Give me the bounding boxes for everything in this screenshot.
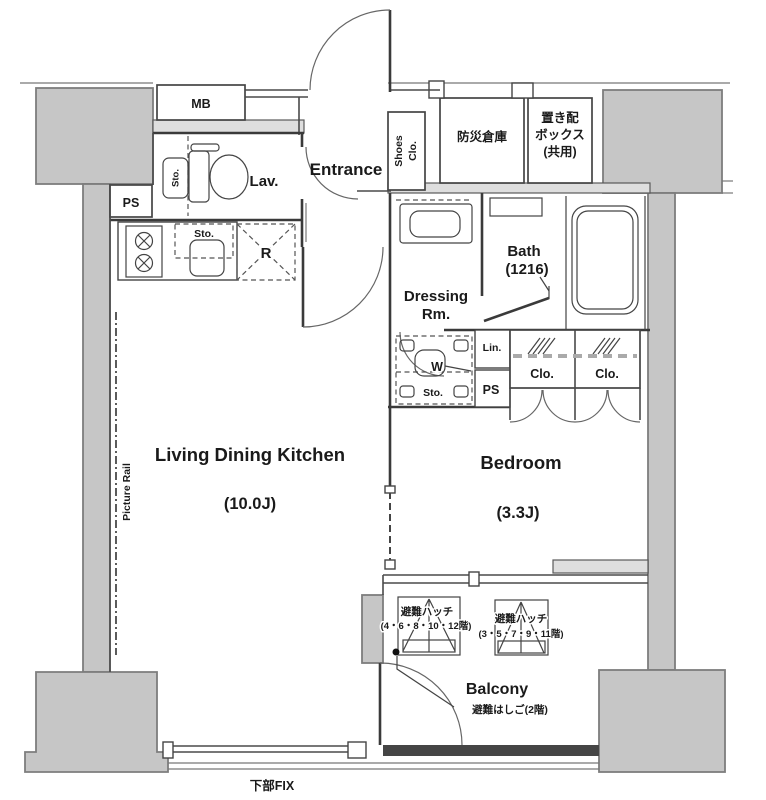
label-closet-1: Clo.: [530, 367, 554, 381]
label-ldk: Living Dining Kitchen: [155, 444, 345, 465]
hall-ldk-door-arc: [303, 247, 383, 327]
floor-plan: MB PS Lav. Sto. Entrance Shoes Clo. 防災倉庫…: [0, 0, 766, 800]
label-delivery-2: ボックス: [535, 127, 585, 142]
label-hatch1-2: (4・6・8・10・12階): [381, 620, 472, 632]
closet-door-arcs: [510, 388, 640, 422]
label-disaster-storage: 防災倉庫: [457, 129, 508, 144]
wall-band-bedroom-balcony: [553, 560, 648, 573]
floor-plan-svg: MB PS Lav. Sto. Entrance Shoes Clo. 防災倉庫…: [0, 0, 766, 800]
label-ps-upper: PS: [123, 196, 140, 210]
dressing-room: [396, 200, 472, 243]
label-washer-sto: Sto.: [423, 387, 443, 399]
bath-label-leader: [540, 277, 549, 291]
label-washer: W: [431, 360, 443, 374]
label-closet-2: Clo.: [595, 367, 619, 381]
label-bath-2: (1216): [505, 261, 548, 278]
pillar-top-right: [603, 90, 722, 193]
label-mb: MB: [191, 97, 210, 111]
label-escape-ladder: 避難はしご(2階): [471, 703, 548, 716]
label-lav: Lav.: [250, 173, 279, 190]
label-balcony: Balcony: [466, 681, 528, 698]
label-hatch1-1: 避難ハッチ: [400, 605, 454, 618]
balcony-parapet: [383, 745, 599, 756]
wall-band-top-right: [388, 183, 650, 193]
label-lav-sto: Sto.: [171, 169, 182, 187]
label-ldk-size: (10.0J): [224, 495, 276, 513]
wall-band-top-left: [153, 120, 304, 133]
bath-counter: [490, 198, 542, 216]
kitchen-counter: [118, 222, 237, 280]
label-ps-lower: PS: [483, 383, 500, 397]
label-kitchen-sto: Sto.: [194, 228, 214, 240]
escape-ladder-dot: [393, 649, 400, 656]
pillar-bottom-left: [25, 672, 168, 772]
vanity-icon: [400, 204, 472, 243]
unit-walls: [110, 133, 650, 672]
label-hatch2-2: (3・5・7・9・11階): [478, 628, 563, 640]
toilet-icon: [189, 144, 248, 202]
wall-tab-2: [512, 83, 533, 98]
escape-hatch-2: [495, 600, 548, 655]
label-entrance: Entrance: [310, 160, 383, 179]
label-refrigerator: R: [261, 245, 272, 262]
label-picture-rail: Picture Rail: [121, 463, 133, 521]
entrance-door-arc: [310, 10, 390, 90]
window-joint: [469, 572, 479, 586]
label-linen: Lin.: [483, 342, 502, 354]
label-bottom-fix: 下部FIX: [250, 778, 295, 793]
label-hatch2-1: 避難ハッチ: [494, 612, 548, 625]
label-delivery-1: 置き配: [541, 110, 579, 125]
washer-label-leader: [445, 366, 471, 371]
escape-ladder-leader: [397, 656, 454, 707]
label-dressing-2: Rm.: [422, 306, 450, 323]
pillar-top-left: [36, 88, 153, 184]
label-shoes-1: Shoes: [393, 135, 405, 167]
label-delivery-3: (共用): [543, 144, 576, 159]
pillar-bottom-right: [599, 670, 725, 772]
label-bath-1: Bath: [507, 243, 540, 260]
label-bedroom-size: (3.3J): [496, 504, 539, 522]
label-dressing-1: Dressing: [404, 288, 468, 305]
label-bedroom: Bedroom: [480, 452, 561, 473]
exterior-wall-left: [83, 184, 110, 672]
label-shoes-2: Clo.: [407, 141, 419, 161]
balcony-structure: [163, 572, 648, 758]
exterior-wall-right: [648, 193, 675, 670]
bathtub-icon: [572, 206, 638, 314]
bath-door-leaf: [484, 298, 549, 321]
